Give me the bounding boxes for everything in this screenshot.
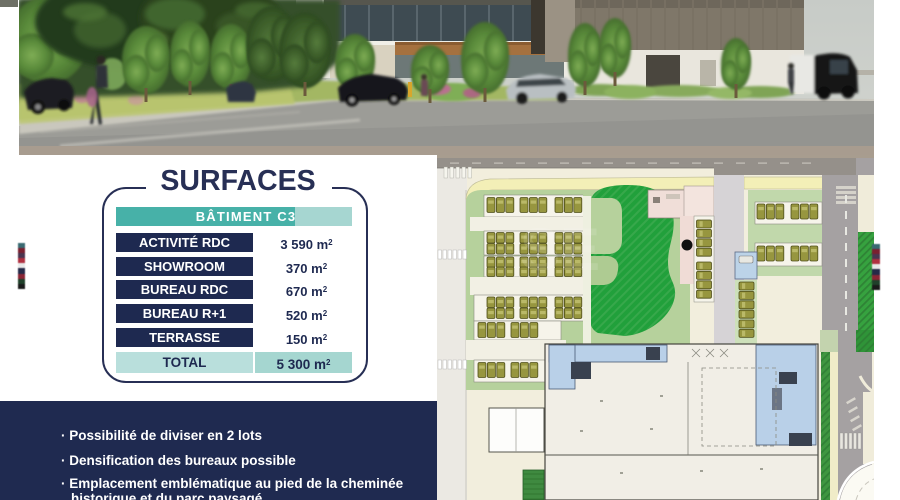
- svg-text:SE: SE: [520, 216, 600, 283]
